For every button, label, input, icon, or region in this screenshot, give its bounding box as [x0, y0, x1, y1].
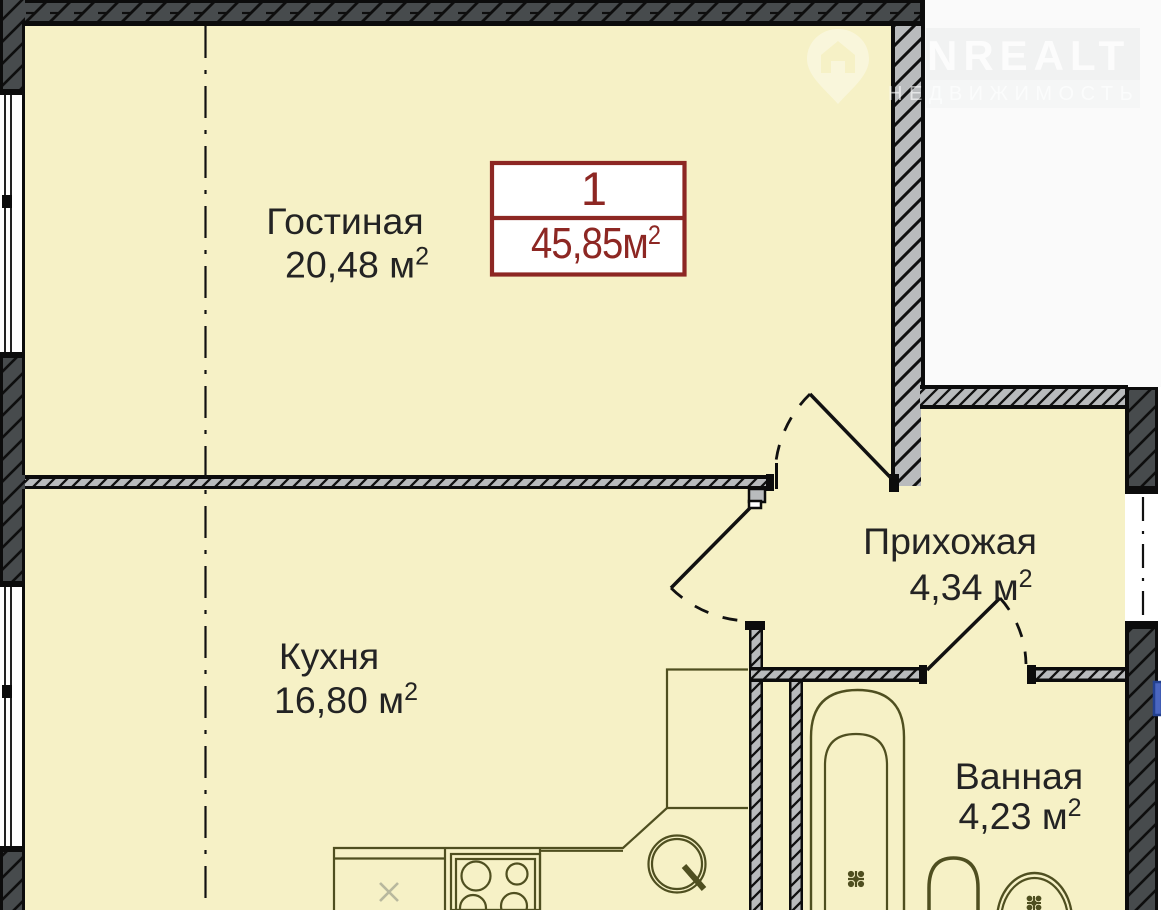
svg-text:Ванная: Ванная: [955, 755, 1083, 797]
svg-text:20,48 м2: 20,48 м2: [285, 243, 429, 286]
svg-text:45,85м2: 45,85м2: [531, 219, 660, 268]
svg-text:Кухня: Кухня: [279, 635, 379, 677]
svg-text:НЕДВИЖИМОСТЬ: НЕДВИЖИМОСТЬ: [888, 83, 1139, 105]
svg-text:4,34 м2: 4,34 м2: [909, 565, 1032, 608]
svg-text:NREALT: NREALT: [927, 32, 1130, 79]
svg-text:Гостиная: Гостиная: [266, 200, 423, 242]
svg-text:Прихожая: Прихожая: [863, 520, 1037, 562]
svg-text:1: 1: [581, 162, 607, 215]
svg-text:16,80 м2: 16,80 м2: [274, 678, 418, 721]
svg-text:4,23 м2: 4,23 м2: [958, 794, 1081, 837]
